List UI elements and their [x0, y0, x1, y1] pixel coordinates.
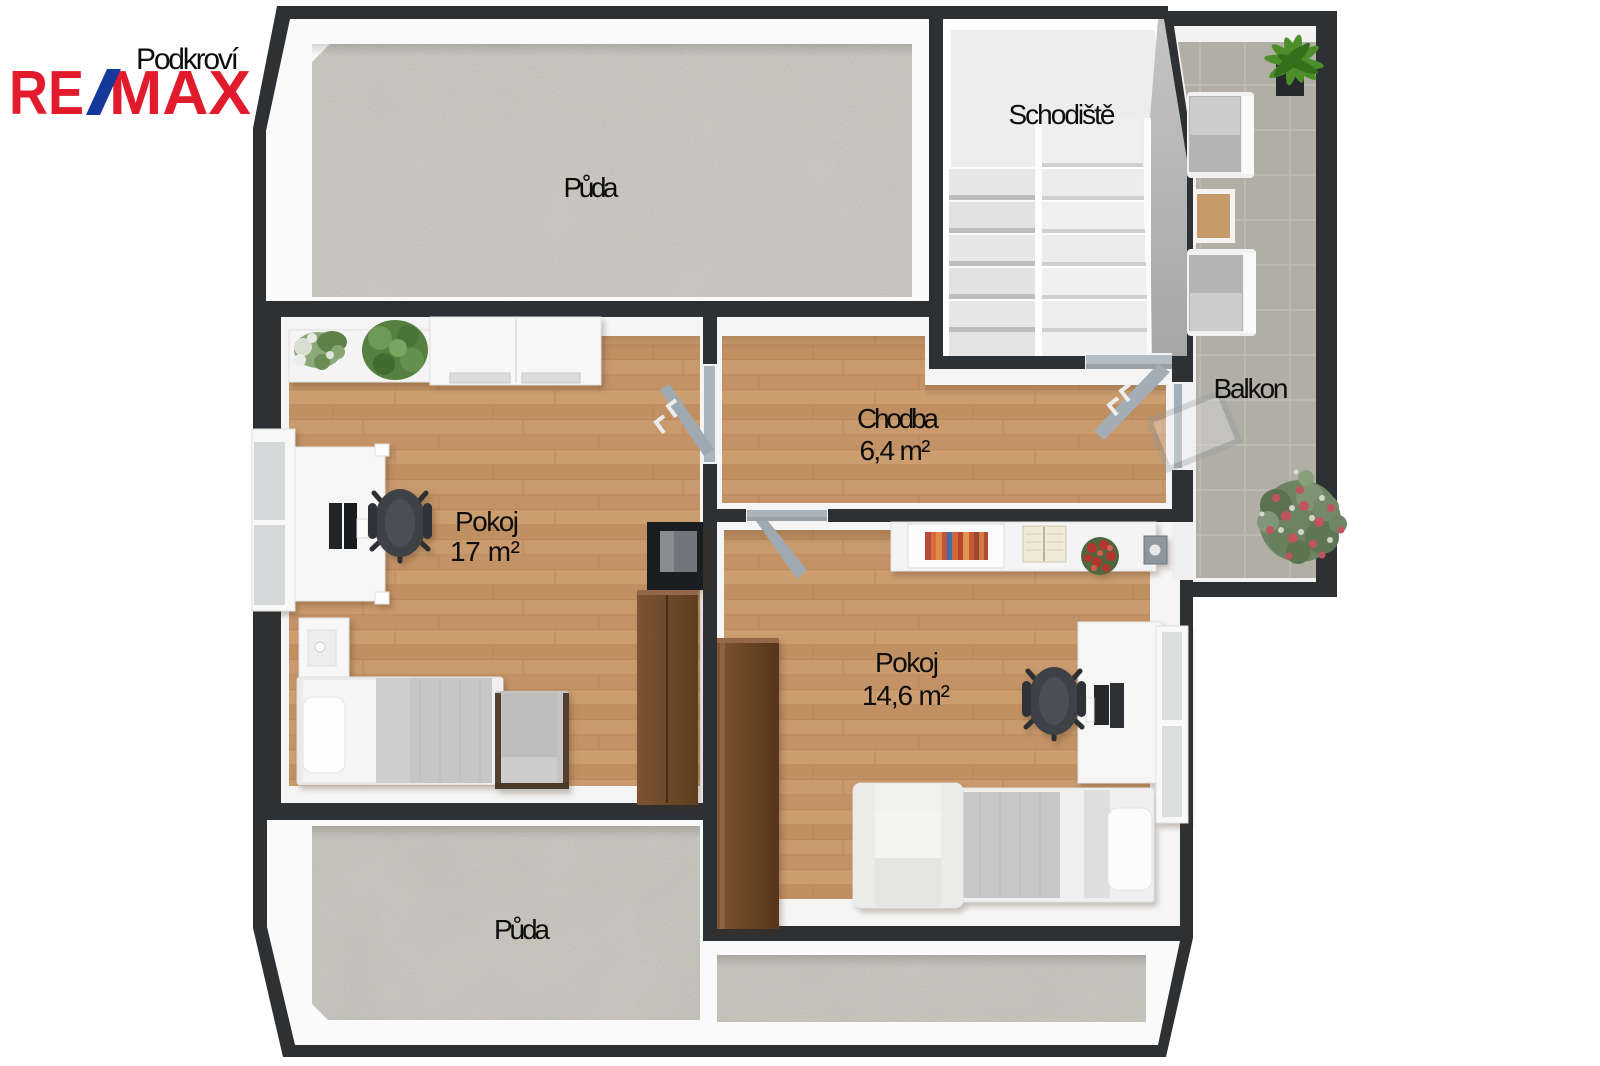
- svg-text:Balkon: Balkon: [1214, 373, 1289, 404]
- svg-text:17 m²: 17 m²: [450, 536, 520, 567]
- svg-text:Pokoj: Pokoj: [455, 506, 519, 537]
- svg-text:14,6 m²: 14,6 m²: [862, 680, 950, 711]
- svg-text:Pokoj: Pokoj: [875, 647, 939, 678]
- svg-text:Chodba: Chodba: [857, 403, 939, 434]
- svg-text:Schodiště: Schodiště: [1009, 99, 1116, 130]
- svg-text:RE: RE: [9, 59, 84, 128]
- svg-text:6,4 m²: 6,4 m²: [860, 435, 931, 466]
- svg-text:MAX: MAX: [109, 59, 251, 128]
- svg-text:Půda: Půda: [494, 914, 550, 945]
- svg-text:Půda: Půda: [564, 172, 619, 203]
